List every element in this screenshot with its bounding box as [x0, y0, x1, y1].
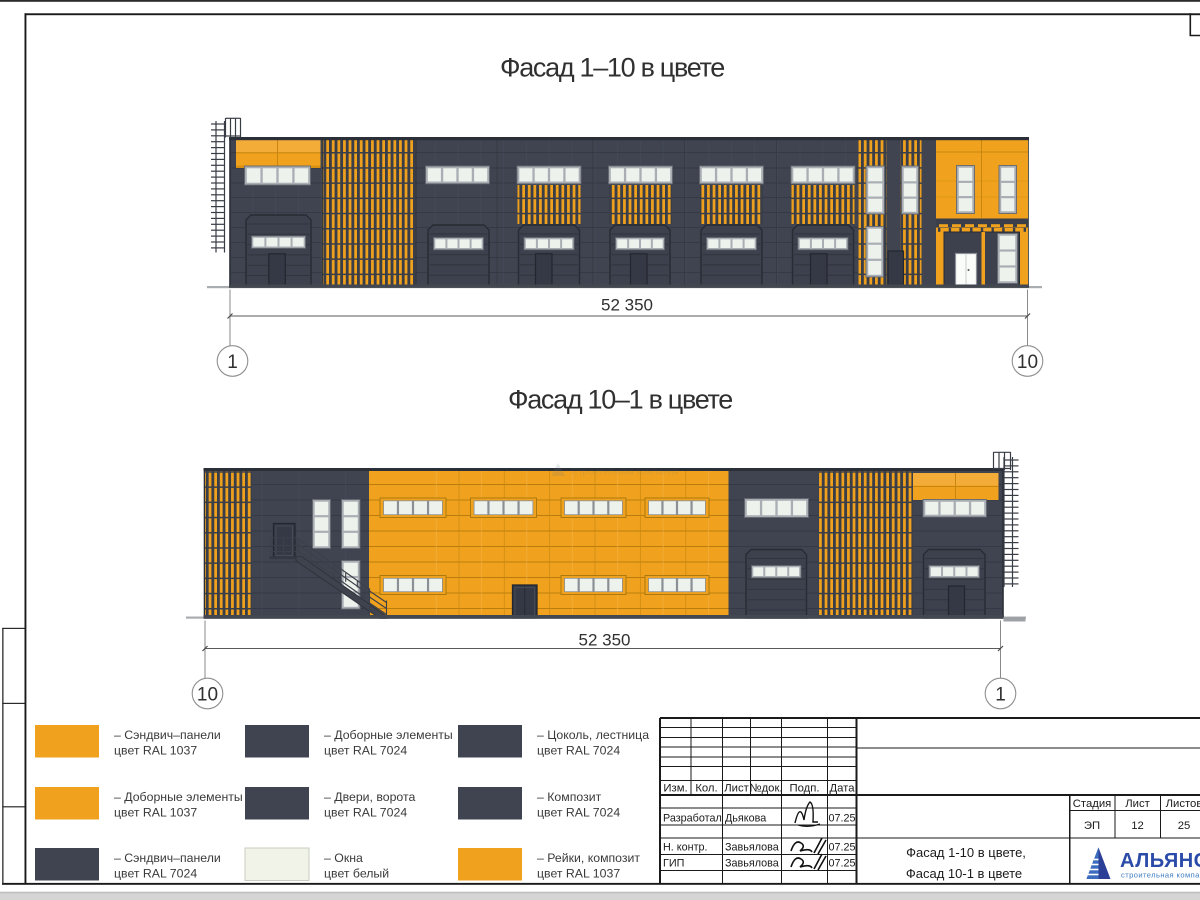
- svg-text:07.25: 07.25: [828, 858, 855, 870]
- svg-text:52 350: 52 350: [579, 631, 631, 650]
- svg-text:Фасад 1–10 в цвете: Фасад 1–10 в цвете: [500, 53, 724, 83]
- svg-text:цвет RAL 1037: цвет RAL 1037: [537, 867, 620, 881]
- svg-text:– Композит: – Композит: [537, 790, 602, 804]
- svg-text:Стадия: Стадия: [1073, 798, 1112, 810]
- svg-text:Завьялова: Завьялова: [725, 858, 779, 870]
- svg-text:цвет RAL 7024: цвет RAL 7024: [324, 806, 407, 820]
- svg-text:– Цоколь, лестница: – Цоколь, лестница: [537, 728, 649, 742]
- svg-text:Завьялова: Завьялова: [725, 842, 779, 854]
- svg-text:Н. контр.: Н. контр.: [663, 842, 708, 854]
- svg-text:– Сэндвич–панели: – Сэндвич–панели: [114, 728, 221, 742]
- svg-text:строительная компания: строительная компания: [1121, 871, 1200, 880]
- svg-text:Листов: Листов: [1166, 798, 1200, 810]
- svg-text:10: 10: [197, 684, 218, 705]
- svg-text:07.25: 07.25: [828, 813, 855, 825]
- svg-text:Фасад 1-10 в цвете,: Фасад 1-10 в цвете,: [906, 845, 1026, 860]
- svg-text:Кол.: Кол.: [695, 783, 717, 795]
- svg-text:ГИП: ГИП: [663, 858, 684, 870]
- svg-text:Подп.: Подп.: [789, 783, 819, 795]
- svg-text:1: 1: [227, 352, 238, 373]
- svg-text:Изм.: Изм.: [663, 783, 687, 795]
- svg-text:Лист: Лист: [1125, 798, 1150, 810]
- svg-text:Фасад 10-1 в цвете: Фасад 10-1 в цвете: [906, 866, 1022, 881]
- svg-text:25: 25: [1178, 820, 1191, 832]
- svg-text:– Окна: – Окна: [324, 851, 363, 865]
- svg-text:цвет RAL 7024: цвет RAL 7024: [114, 867, 197, 881]
- svg-text:Строительная компания: Строительная компания: [571, 467, 678, 478]
- svg-text:52 350: 52 350: [601, 296, 653, 315]
- svg-text:цвет RAL 1037: цвет RAL 1037: [114, 806, 197, 820]
- svg-text:ЭП: ЭП: [1084, 820, 1100, 832]
- svg-text:– Рейки, композит: – Рейки, композит: [537, 851, 640, 865]
- svg-text:Фасад 10–1 в цвете: Фасад 10–1 в цвете: [508, 385, 732, 415]
- svg-text:07.25: 07.25: [828, 842, 855, 854]
- svg-text:– Доборные элементы: – Доборные элементы: [324, 728, 453, 742]
- svg-text:Дьякова: Дьякова: [725, 813, 766, 825]
- svg-text:12: 12: [1131, 820, 1144, 832]
- svg-text:– Доборные элементы: – Доборные элементы: [114, 790, 243, 804]
- svg-text:Дата: Дата: [829, 783, 855, 795]
- svg-text:Лист: Лист: [724, 783, 749, 795]
- svg-text:10: 10: [1017, 352, 1038, 373]
- svg-text:цвет RAL 7024: цвет RAL 7024: [537, 744, 620, 758]
- svg-text:– Двери, ворота: – Двери, ворота: [324, 790, 415, 804]
- svg-text:– Сэндвич–панели: – Сэндвич–панели: [114, 851, 221, 865]
- svg-text:АЛЬЯНС: АЛЬЯНС: [1120, 850, 1200, 872]
- svg-text:цвет RAL 7024: цвет RAL 7024: [537, 806, 620, 820]
- svg-text:цвет белый: цвет белый: [324, 867, 389, 881]
- svg-text:1: 1: [995, 684, 1006, 705]
- svg-text:цвет RAL 1037: цвет RAL 1037: [114, 744, 197, 758]
- svg-text:Разработал: Разработал: [663, 813, 722, 825]
- svg-text:цвет RAL 7024: цвет RAL 7024: [324, 744, 407, 758]
- svg-text:№док.: №док.: [749, 783, 782, 795]
